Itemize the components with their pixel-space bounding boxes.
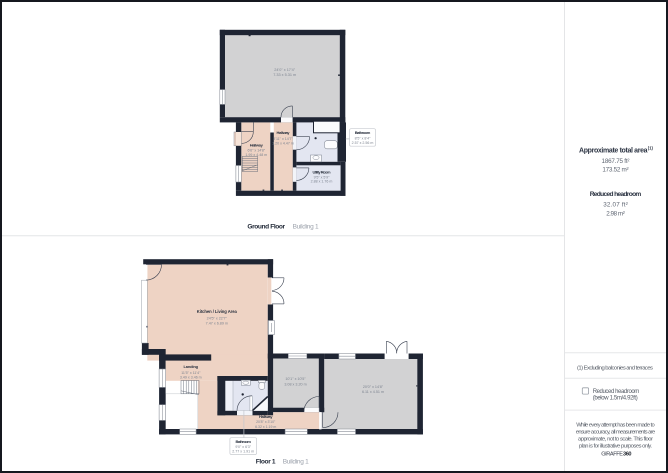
svg-text:Approximate total area: Approximate total area [579,148,648,155]
svg-text:2.98 m²: 2.98 m² [606,211,625,218]
svg-text:7.47 x 6.89 m: 7.47 x 6.89 m [206,321,228,325]
svg-text:32.07 ft²: 32.07 ft² [603,201,628,208]
svg-text:360: 360 [623,451,632,457]
svg-text:Building 1: Building 1 [283,458,309,465]
svg-text:1867.75 ft²: 1867.75 ft² [602,158,630,165]
svg-text:2.77 x 1.91 m: 2.77 x 1.91 m [232,449,254,453]
svg-text:2.88 x 1.76 m: 2.88 x 1.76 m [311,180,333,184]
svg-text:While every attempt has been m: While every attempt has been made to [576,422,655,428]
svg-text:3.49 x 3.46 m: 3.49 x 3.46 m [180,376,202,380]
svg-text:24'0" x 17'4": 24'0" x 17'4" [274,68,295,72]
svg-text:1.99 x 4.48 m: 1.99 x 4.48 m [245,153,267,157]
svg-text:20'8" x 3'10": 20'8" x 3'10" [256,420,276,424]
svg-text:Bathroom: Bathroom [355,130,371,135]
svg-text:6.11 x 4.51 m: 6.11 x 4.51 m [362,390,384,394]
svg-text:Building 1: Building 1 [293,223,319,230]
svg-text:10'1" x 10'5": 10'1" x 10'5" [285,377,306,381]
svg-text:6.32 x 1.19 m: 6.32 x 1.19 m [255,425,276,429]
svg-text:Ground Floor: Ground Floor [247,223,285,230]
svg-text:11'5" x 11'4": 11'5" x 11'4" [181,371,201,375]
svg-text:Reduced headroom: Reduced headroom [590,191,642,198]
svg-text:24'5" x 22'7": 24'5" x 22'7" [207,317,228,321]
svg-text:Kitchen / Living Area: Kitchen / Living Area [197,309,238,314]
svg-text:(1) Excluding balconies and te: (1) Excluding balconies and terraces [577,365,653,371]
svg-text:9'0" x 6'3": 9'0" x 6'3" [235,445,251,449]
svg-text:ensure accuracy, all measureme: ensure accuracy, all measurements are [576,429,656,435]
svg-text:Floor 1: Floor 1 [256,458,276,465]
svg-text:GIRAFFE: GIRAFFE [601,451,623,457]
svg-text:Hallway: Hallway [250,142,264,147]
svg-text:2.57 x 2.56 m: 2.57 x 2.56 m [352,141,374,145]
svg-text:plan is for illustrative purpo: plan is for illustrative purposes only. [579,443,652,449]
svg-text:(below 1.5m/4.92ft): (below 1.5m/4.92ft) [593,395,638,401]
svg-text:Hallway: Hallway [277,130,291,135]
svg-text:3.08 x 3.20 m: 3.08 x 3.20 m [284,383,306,387]
svg-text:7.33 x 5.31 m: 7.33 x 5.31 m [273,73,296,77]
svg-text:Utility Room: Utility Room [313,170,331,175]
svg-text:20'0" x 14'8": 20'0" x 14'8" [363,385,384,389]
svg-text:Landing: Landing [184,364,199,369]
svg-text:approximate, not to scale. Thi: approximate, not to scale. This floor [578,436,653,442]
svg-text:(1): (1) [648,145,654,150]
svg-text:1.20 x 4.47 m: 1.20 x 4.47 m [272,142,294,146]
svg-text:Bathroom: Bathroom [235,439,251,444]
svg-text:173.52 m²: 173.52 m² [602,167,628,174]
svg-text:Hallway: Hallway [259,414,273,419]
svg-text:Reduced headroom: Reduced headroom [593,389,640,395]
